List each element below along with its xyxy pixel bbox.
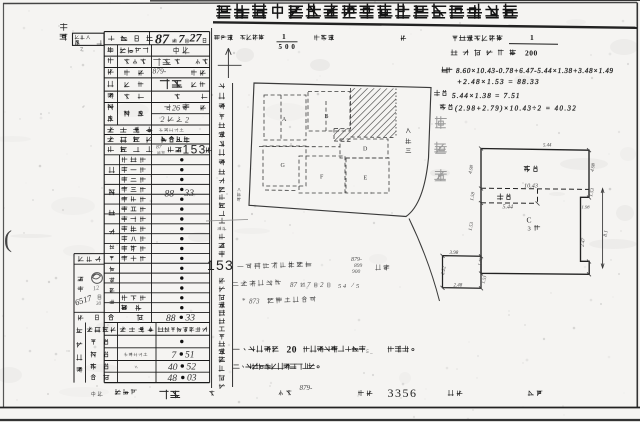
svg-text:A: A [282, 117, 287, 123]
svg-text:C: C [527, 216, 532, 225]
svg-text:12: 12 [93, 285, 100, 292]
svg-text:20: 20 [287, 346, 298, 356]
svg-text:2: 2 [185, 116, 189, 125]
svg-text:51: 51 [185, 351, 195, 361]
svg-text:48: 48 [168, 374, 178, 384]
svg-text:7: 7 [307, 281, 311, 289]
svg-text:E: E [364, 176, 368, 182]
svg-text:2.22: 2.22 [441, 265, 448, 275]
svg-text:6517: 6517 [74, 292, 94, 307]
svg-text:88: 88 [165, 190, 175, 200]
svg-text:200: 200 [525, 49, 538, 58]
svg-text:3.98: 3.98 [450, 251, 459, 256]
svg-text:40: 40 [168, 363, 178, 373]
svg-text:3: 3 [528, 226, 531, 233]
svg-text:3356: 3356 [388, 386, 418, 400]
svg-text:153: 153 [207, 257, 234, 273]
svg-text:(2.98+2.79)×10.43÷2 = 40.32: (2.98+2.79)×10.43÷2 = 40.32 [455, 105, 577, 112]
svg-text:5: 5 [366, 349, 369, 355]
svg-text:5.44: 5.44 [503, 204, 514, 211]
svg-text:10.43: 10.43 [524, 183, 538, 190]
svg-text:5.44×1.38 = 7.51: 5.44×1.38 = 7.51 [452, 92, 521, 100]
svg-text:5: 5 [356, 283, 360, 290]
svg-text:27: 27 [189, 31, 203, 45]
svg-text:B: B [325, 114, 329, 120]
svg-text:33: 33 [185, 314, 196, 324]
svg-text:33: 33 [184, 189, 195, 199]
svg-text:D: D [363, 147, 368, 153]
svg-text:87: 87 [290, 281, 298, 289]
svg-text:G: G [281, 163, 286, 169]
svg-text:88: 88 [166, 314, 176, 324]
svg-text:1.53: 1.53 [469, 221, 476, 231]
svg-text:*: * [242, 297, 246, 305]
svg-text:26: 26 [172, 104, 180, 113]
svg-text:879-: 879- [153, 67, 167, 76]
svg-text:1.53: 1.53 [481, 275, 488, 285]
svg-text:1.53: 1.53 [589, 187, 596, 197]
svg-text:4.98: 4.98 [469, 164, 476, 174]
svg-text:900: 900 [352, 269, 361, 275]
svg-text:F: F [320, 175, 324, 181]
svg-text:1.98: 1.98 [582, 205, 591, 210]
svg-text:1: 1 [282, 32, 286, 41]
svg-text:879-: 879- [300, 384, 314, 392]
svg-text:5 4: 5 4 [338, 283, 347, 290]
svg-text:30: 30 [96, 302, 102, 307]
svg-text:87: 87 [155, 33, 170, 48]
svg-text:873: 873 [249, 298, 260, 306]
svg-text:5.44: 5.44 [543, 144, 552, 149]
svg-text:+2.48×1.53 = 88.33: +2.48×1.53 = 88.33 [457, 78, 540, 86]
svg-text:2.47: 2.47 [581, 237, 588, 247]
svg-text:5 0 0: 5 0 0 [279, 43, 296, 51]
svg-text:2: 2 [161, 115, 165, 124]
svg-text:153: 153 [183, 143, 207, 157]
svg-text:87: 87 [156, 145, 162, 151]
svg-text:7: 7 [172, 351, 178, 361]
svg-text:2.48: 2.48 [454, 284, 463, 289]
svg-text:03: 03 [187, 374, 197, 384]
svg-text:(: ( [4, 227, 12, 253]
svg-text:~: ~ [370, 352, 373, 357]
svg-text:1.58: 1.58 [470, 191, 477, 201]
svg-text:8.60×10.43-0.78+6.47-5.44×1.38: 8.60×10.43-0.78+6.47-5.44×1.38+3.48×1.49 [456, 68, 614, 75]
svg-text:4.98: 4.98 [591, 162, 598, 172]
svg-text:7: 7 [179, 32, 186, 46]
svg-text:52: 52 [187, 363, 197, 373]
svg-text:8.1: 8.1 [603, 230, 610, 238]
svg-text:1: 1 [530, 33, 534, 42]
svg-text:2: 2 [320, 281, 324, 289]
